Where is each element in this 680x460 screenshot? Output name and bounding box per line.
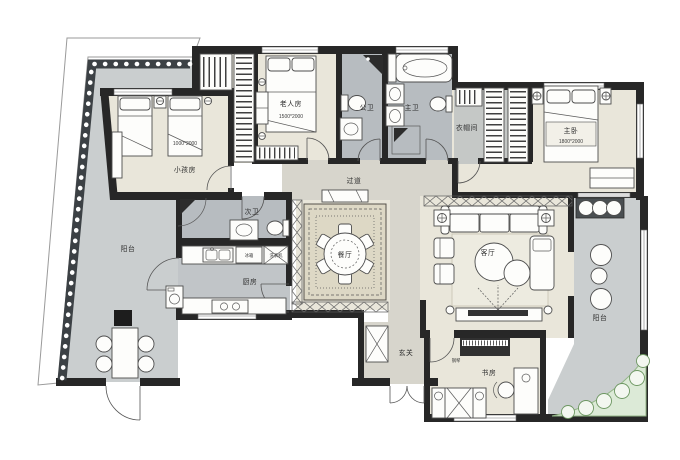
dresser: [590, 168, 634, 188]
label-study: 书房: [482, 368, 497, 377]
balcony-chair: [138, 356, 154, 372]
floor-speaker: [446, 306, 454, 314]
armchair: [434, 264, 454, 284]
balcony-chair: [96, 336, 112, 352]
label-kitchen: 厨房: [243, 277, 258, 286]
bed-master: [544, 86, 598, 162]
toilet-icon: [267, 220, 289, 236]
floor-speaker: [544, 306, 552, 314]
hallway-console: [322, 190, 368, 202]
moon-chair: [591, 245, 612, 266]
wardrobe-cloak-2: [508, 88, 528, 162]
label-hallway: 过道: [347, 176, 362, 185]
shaft-box: [366, 326, 388, 362]
label-dining-room: 餐厅: [338, 250, 353, 259]
label-washer: 洗衣机: [270, 252, 284, 259]
wardrobe-cloak-1: [484, 88, 504, 162]
label-guest-bath: 公卫: [360, 104, 375, 112]
piano: [460, 338, 510, 356]
label-cloakroom: 衣帽间: [456, 123, 478, 132]
bathtub-icon: [396, 54, 452, 82]
wall-lamp-icon: [259, 133, 266, 140]
plant-icon: [562, 406, 575, 419]
armchair: [434, 238, 454, 258]
wall-lamp-icon: [259, 79, 266, 86]
floor-plan-page: 小孩房 1000*2000 老人房 1500*2000 公卫 主卫 衣帽间 主卧…: [0, 0, 680, 460]
daybed: [432, 388, 486, 418]
plant-icon: [597, 394, 612, 409]
window: [578, 193, 630, 197]
floor-plan: 小孩房 1000*2000 老人房 1500*2000 公卫 主卫 衣帽间 主卧…: [0, 0, 680, 460]
label-elder-room: 老人房: [280, 99, 302, 108]
door-entry-right: [407, 386, 424, 403]
label-elder-bed-size: 1500*2000: [279, 114, 303, 120]
wall-lamp-icon: [156, 97, 163, 104]
plant-icon: [579, 401, 594, 416]
shelf: [388, 54, 396, 82]
washing-machine: [166, 286, 183, 308]
label-living-room: 客厅: [481, 248, 496, 257]
chaise-lounge: [530, 236, 554, 290]
label-balcony-left: 阳台: [121, 244, 136, 253]
label-kids-room: 小孩房: [174, 165, 196, 174]
window: [641, 230, 647, 330]
plant-icon: [637, 355, 650, 368]
wardrobe-kids: [234, 54, 254, 162]
bed-elder: [266, 56, 316, 132]
sofa: [441, 206, 547, 234]
window: [114, 89, 172, 95]
wardrobe-alcove: [200, 54, 232, 90]
label-balcony-right: 阳台: [593, 313, 608, 322]
label-second-bath: 次卫: [245, 207, 260, 216]
desk: [514, 368, 538, 414]
door-balcony-left: [106, 386, 140, 420]
kitchen-sink: [203, 248, 233, 262]
planter-box: [576, 198, 624, 218]
window: [262, 47, 318, 53]
cooktop: [212, 300, 248, 313]
balcony-chair: [138, 336, 154, 352]
balcony-stool: [114, 310, 132, 326]
wall-lamp-icon: [602, 92, 610, 100]
label-master-bed-size: 1800*2000: [559, 139, 583, 145]
label-fridge: 冰箱: [245, 252, 254, 259]
bed-kids-1: [118, 96, 152, 156]
label-piano: 钢琴: [452, 357, 461, 364]
vanity-sink: [340, 118, 362, 140]
label-master-bath: 主卫: [405, 103, 420, 112]
label-master-bedroom: 主卧: [564, 126, 579, 135]
balcony-chair: [96, 356, 112, 372]
label-kids-bed-size: 1000*2000: [173, 141, 197, 147]
balcony-table: [112, 328, 138, 378]
plant-icon: [630, 371, 645, 386]
floor-hallway: [282, 160, 456, 200]
nightstand: [256, 92, 268, 124]
wall-lamp-icon: [204, 97, 211, 104]
label-entry: 玄关: [399, 348, 414, 357]
side-table-lamp: [434, 210, 450, 226]
wardrobe-cloak-top: [456, 88, 482, 106]
sink-icon: [386, 106, 404, 126]
toilet-icon: [430, 96, 452, 112]
door-entry-left: [390, 386, 407, 403]
sink-icon: [386, 84, 404, 104]
side-table-lamp: [538, 210, 554, 226]
desk-kids: [112, 132, 122, 178]
bed-kids-2: [168, 96, 202, 156]
coffee-table-small: [504, 260, 530, 286]
moon-chair: [591, 289, 612, 310]
wardrobe-elder: [256, 146, 298, 160]
window: [637, 104, 643, 158]
window: [396, 47, 448, 53]
balcony-table: [591, 268, 607, 284]
vanity-sink: [230, 220, 258, 240]
wall-lamp-icon: [533, 92, 541, 100]
plant-icon: [615, 384, 630, 399]
